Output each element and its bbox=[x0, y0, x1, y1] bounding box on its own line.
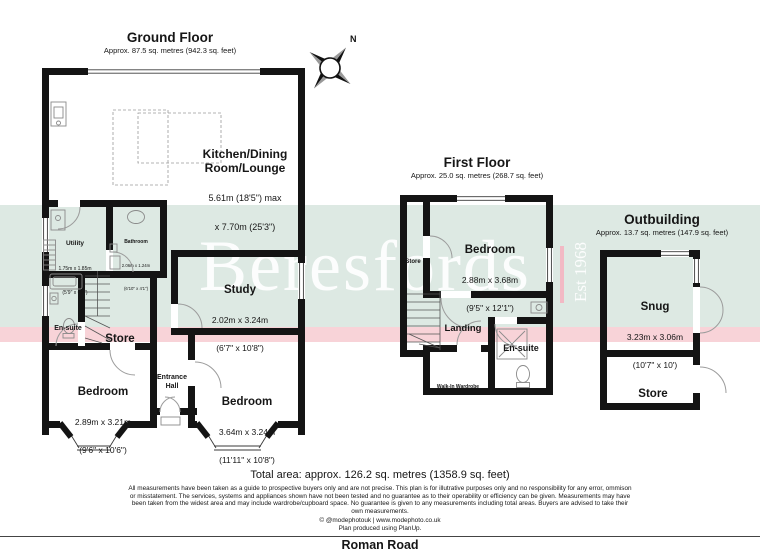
compass-north-letter: N bbox=[350, 34, 357, 44]
outbuilding-area: Approx. 13.7 sq. metres (147.9 sq. feet) bbox=[562, 228, 760, 237]
room-label-bedroom-ground-left: Bedroom 2.89m x 3.21m (9'6" x 10'6") bbox=[43, 368, 163, 473]
disclaimer-text: All measurements have been taken as a gu… bbox=[0, 485, 760, 515]
room-label-bedroom-ground-right: Bedroom 3.64m x 3.24m (11'11" x 10'8") bbox=[187, 378, 307, 483]
photo-credit-text: © @modephotouk | www.modephoto.co.uk bbox=[0, 517, 760, 524]
outbuilding-title: Outbuilding bbox=[562, 212, 760, 227]
room-label-store-outbuilding: Store bbox=[593, 370, 713, 418]
room-label-ensuite-first: En-suite bbox=[481, 325, 561, 371]
footer-divider bbox=[0, 536, 760, 537]
room-label-kitchen: Kitchen/Dining Room/Lounge 5.61m (18'5")… bbox=[165, 130, 325, 250]
first-floor-area: Approx. 25.0 sq. metres (268.7 sq. feet) bbox=[377, 171, 577, 180]
ground-floor-title: Ground Floor bbox=[70, 30, 270, 45]
room-label-wardrobe: Walk-In Wardrobe bbox=[418, 366, 498, 408]
room-label-bathroom: Bathroom 2.06m x 1.24m (6'10" x 4'1") bbox=[96, 221, 176, 309]
street-name-title: Roman Road bbox=[0, 538, 760, 552]
floorplan-page: Beresfords Est 1968 Ground Floor Approx.… bbox=[0, 0, 760, 552]
total-area-text: Total area: approx. 126.2 sq. metres (13… bbox=[0, 469, 760, 481]
plan-software-text: Plan produced using PlanUp. bbox=[0, 525, 760, 532]
first-floor-title: First Floor bbox=[377, 155, 577, 170]
ground-floor-area: Approx. 87.5 sq. metres (942.3 sq. feet) bbox=[70, 46, 270, 55]
